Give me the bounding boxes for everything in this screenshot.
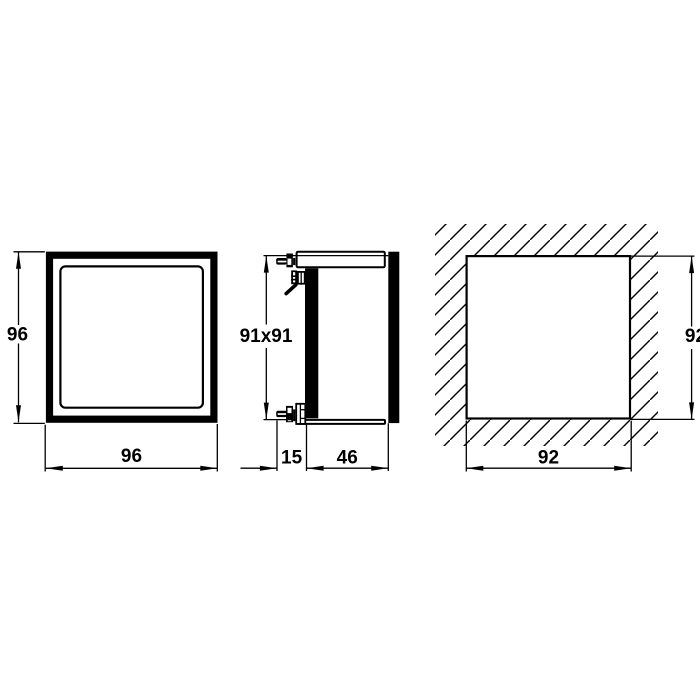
svg-text:96: 96 [7,325,28,346]
svg-text:96: 96 [121,446,142,467]
svg-text:15: 15 [281,448,303,469]
svg-text:91x91: 91x91 [240,326,293,347]
svg-text:92: 92 [685,326,700,347]
svg-text:92: 92 [538,447,559,468]
svg-text:46: 46 [337,448,358,469]
